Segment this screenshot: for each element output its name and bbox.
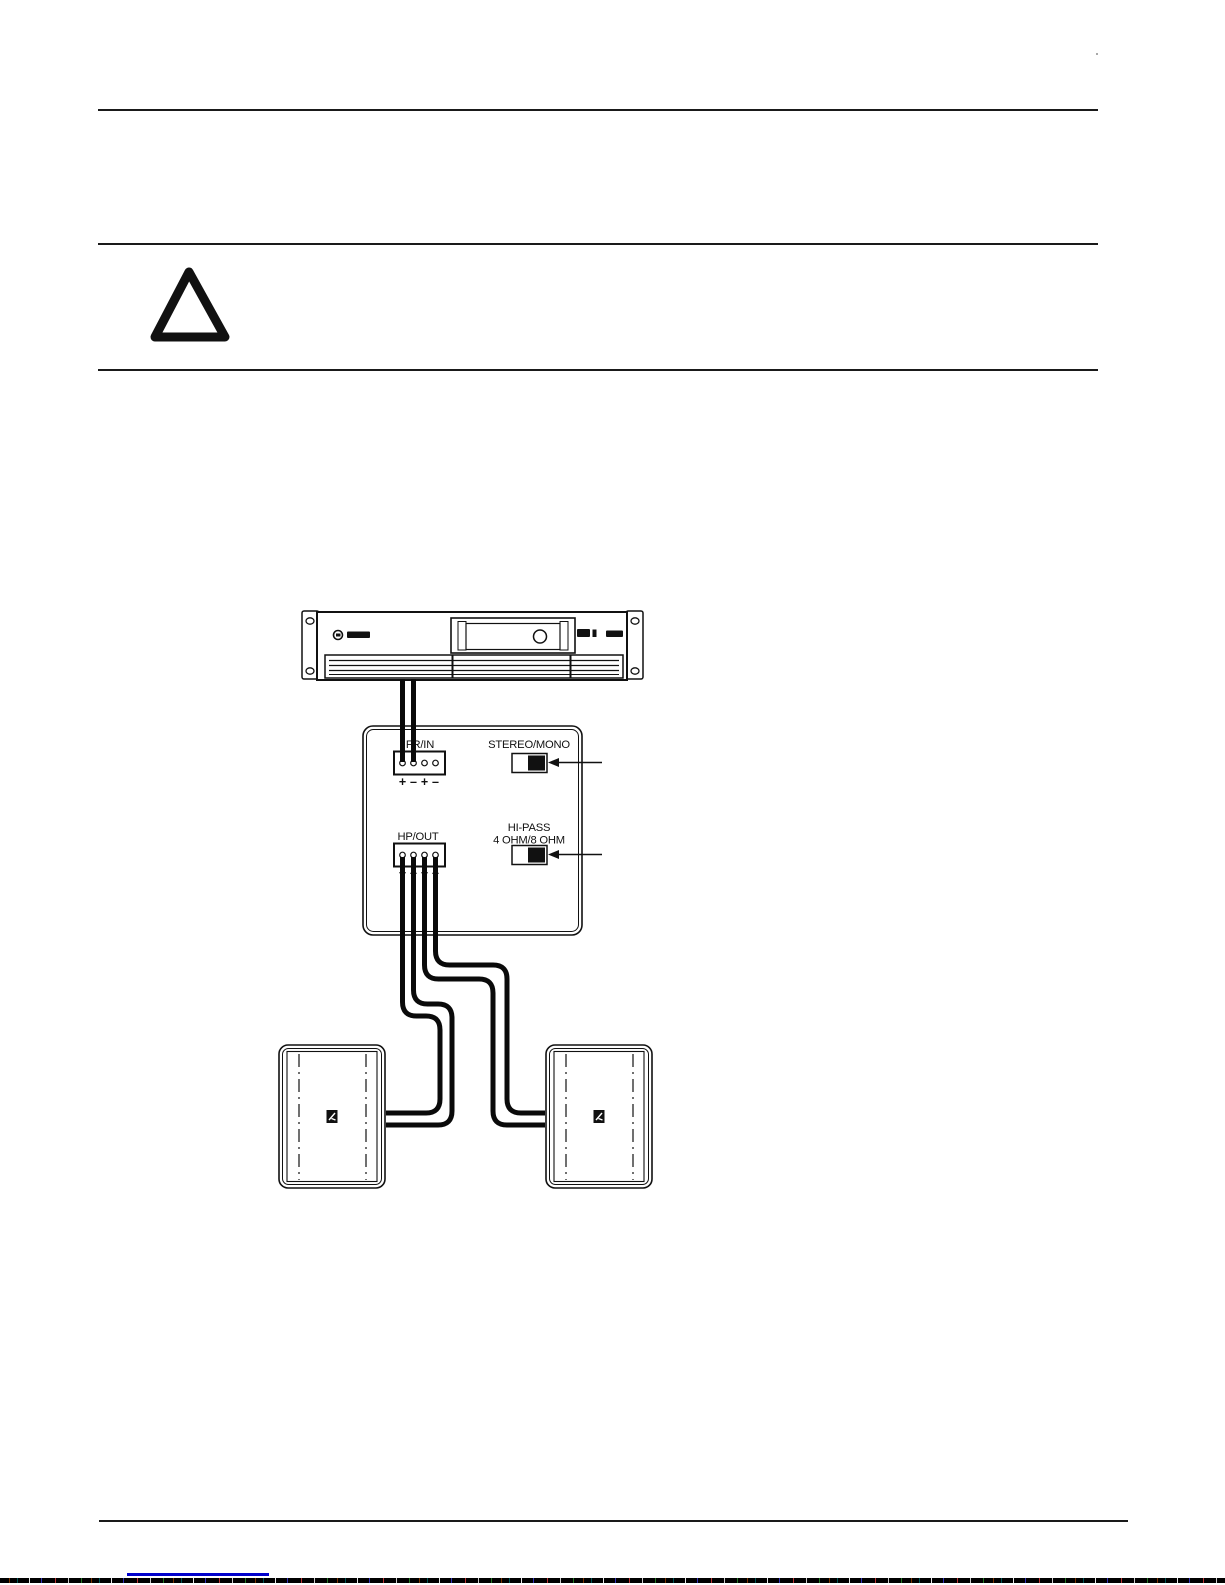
terminal-screw: [400, 852, 406, 858]
footer-hyperlink-underline[interactable]: [127, 1573, 269, 1576]
ohm-label: 4 OHM/8 OHM: [493, 835, 565, 847]
badge-mark: [593, 630, 597, 638]
badge-mark: [577, 629, 590, 637]
terminal-screw: [422, 852, 428, 858]
terminal-screw: [422, 760, 428, 766]
hp-out-label: HP/OUT: [397, 831, 438, 843]
rack-ear-right: [626, 611, 643, 679]
stray-mark: [1096, 53, 1098, 55]
model-name-mark: [606, 631, 623, 638]
speaker-left: [279, 1045, 385, 1188]
terminal-screw: [433, 852, 439, 858]
speaker-right: [546, 1045, 652, 1188]
fr-in-label: FR/IN: [406, 739, 434, 751]
stereo-mono-label: STEREO/MONO: [488, 739, 570, 751]
polarity-mark: –: [410, 775, 417, 789]
polarity-mark: –: [432, 775, 439, 789]
terminal-screw: [411, 852, 417, 858]
document-page: FR/IN + – + – STEREO/MONO HP/OUT HI-PASS…: [0, 0, 1225, 1585]
brand-logo-icon: [336, 634, 341, 637]
page-edge-artifact: [0, 1578, 1225, 1583]
warning-triangle-icon: [138, 256, 242, 352]
amplifier-unit: [302, 611, 643, 680]
polarity-mark: +: [421, 775, 428, 789]
level-knob-icon: [534, 630, 547, 643]
brand-name-mark: [347, 632, 370, 639]
crossover-panel: FR/IN + – + – STEREO/MONO HP/OUT HI-PASS…: [363, 726, 602, 935]
caution-box-rule-top: [98, 243, 1098, 245]
terminal-screw: [433, 760, 439, 766]
stereo-mono-switch-knob: [528, 756, 545, 771]
wiring-diagram: FR/IN + – + – STEREO/MONO HP/OUT HI-PASS…: [270, 595, 670, 1207]
display-trim-right: [560, 622, 568, 651]
polarity-mark: +: [399, 775, 406, 789]
footer-rule: [99, 1520, 1128, 1522]
header-rule-top: [98, 109, 1098, 111]
hi-pass-switch-knob: [528, 848, 545, 863]
display-trim-left: [458, 622, 466, 651]
caution-box-rule-bottom: [98, 369, 1098, 371]
hi-pass-label: HI-PASS: [508, 822, 551, 834]
